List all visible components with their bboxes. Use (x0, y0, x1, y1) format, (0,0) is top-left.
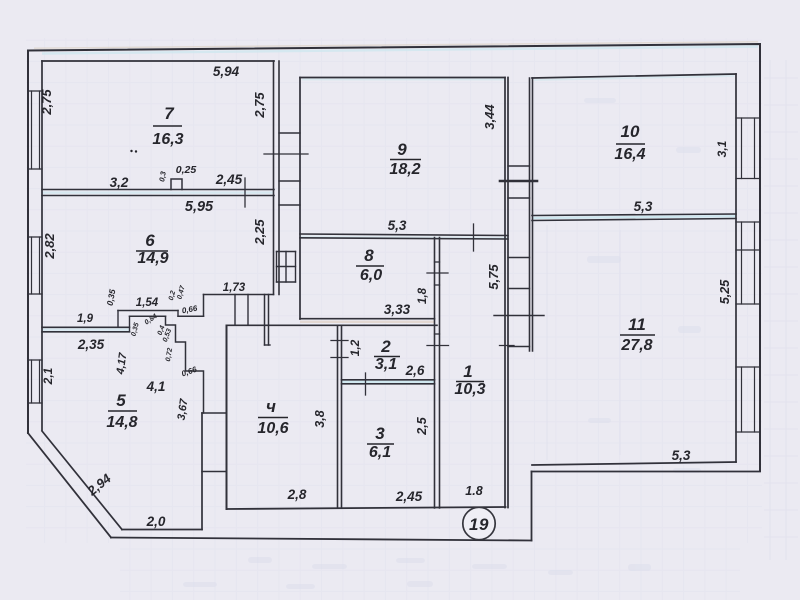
svg-text:2,8: 2,8 (287, 487, 307, 502)
svg-text:6,1: 6,1 (369, 444, 391, 461)
svg-text:2: 2 (380, 337, 391, 356)
svg-text:3,1: 3,1 (375, 356, 397, 373)
svg-text:2,45: 2,45 (395, 489, 423, 504)
svg-text:3,33: 3,33 (384, 302, 411, 317)
svg-text:10,3: 10,3 (454, 381, 485, 398)
svg-text:5,94: 5,94 (213, 64, 240, 79)
svg-text:5,25: 5,25 (718, 279, 732, 304)
svg-text:16,4: 16,4 (614, 146, 645, 163)
svg-text:6: 6 (145, 231, 155, 250)
svg-text:1,54: 1,54 (136, 297, 159, 309)
svg-text:1: 1 (463, 362, 472, 381)
svg-text:18,2: 18,2 (389, 161, 420, 178)
svg-text:2,25: 2,25 (252, 219, 267, 246)
svg-text:2,75: 2,75 (39, 89, 54, 116)
svg-text:16,3: 16,3 (152, 131, 183, 148)
svg-text:3: 3 (375, 424, 385, 443)
svg-text:3,1: 3,1 (715, 140, 729, 157)
svg-text:10,6: 10,6 (257, 420, 288, 437)
svg-text:27,8: 27,8 (620, 337, 652, 354)
svg-text:2,1: 2,1 (41, 367, 55, 385)
svg-text:19: 19 (469, 515, 489, 534)
svg-text:2,82: 2,82 (42, 233, 57, 260)
svg-text:3,2: 3,2 (110, 175, 129, 190)
svg-text:4,1: 4,1 (146, 379, 166, 394)
svg-text:1,9: 1,9 (77, 313, 94, 325)
svg-text:1.8: 1.8 (465, 484, 482, 498)
svg-text:6,0: 6,0 (360, 267, 382, 284)
svg-text:9: 9 (397, 140, 407, 159)
svg-text:5,3: 5,3 (634, 199, 653, 214)
svg-text:1,73: 1,73 (223, 282, 246, 294)
svg-text:5,3: 5,3 (388, 218, 407, 233)
svg-text:1,8: 1,8 (417, 287, 429, 304)
svg-text:7: 7 (164, 104, 175, 123)
svg-text:5,3: 5,3 (672, 448, 691, 463)
svg-text:5: 5 (116, 391, 126, 410)
svg-text:ч: ч (266, 397, 276, 416)
svg-text:14,8: 14,8 (106, 414, 137, 431)
svg-text:2,75: 2,75 (252, 92, 267, 119)
svg-text:8: 8 (364, 246, 374, 265)
svg-text:5,75: 5,75 (486, 264, 501, 290)
svg-text:14,9: 14,9 (137, 250, 168, 267)
svg-text:2,45: 2,45 (215, 172, 243, 187)
svg-text:1,2: 1,2 (348, 339, 362, 356)
svg-text:3,44: 3,44 (482, 104, 497, 130)
svg-text:3,8: 3,8 (313, 410, 327, 427)
svg-text:2,5: 2,5 (415, 416, 429, 435)
svg-text:11: 11 (628, 315, 646, 334)
svg-text:5,95: 5,95 (185, 199, 214, 215)
svg-text:0,25: 0,25 (176, 164, 197, 176)
svg-text:2,0: 2,0 (146, 514, 166, 529)
svg-text:2,35: 2,35 (77, 337, 105, 352)
svg-text:10: 10 (621, 122, 640, 141)
svg-text:2,6: 2,6 (405, 363, 425, 378)
